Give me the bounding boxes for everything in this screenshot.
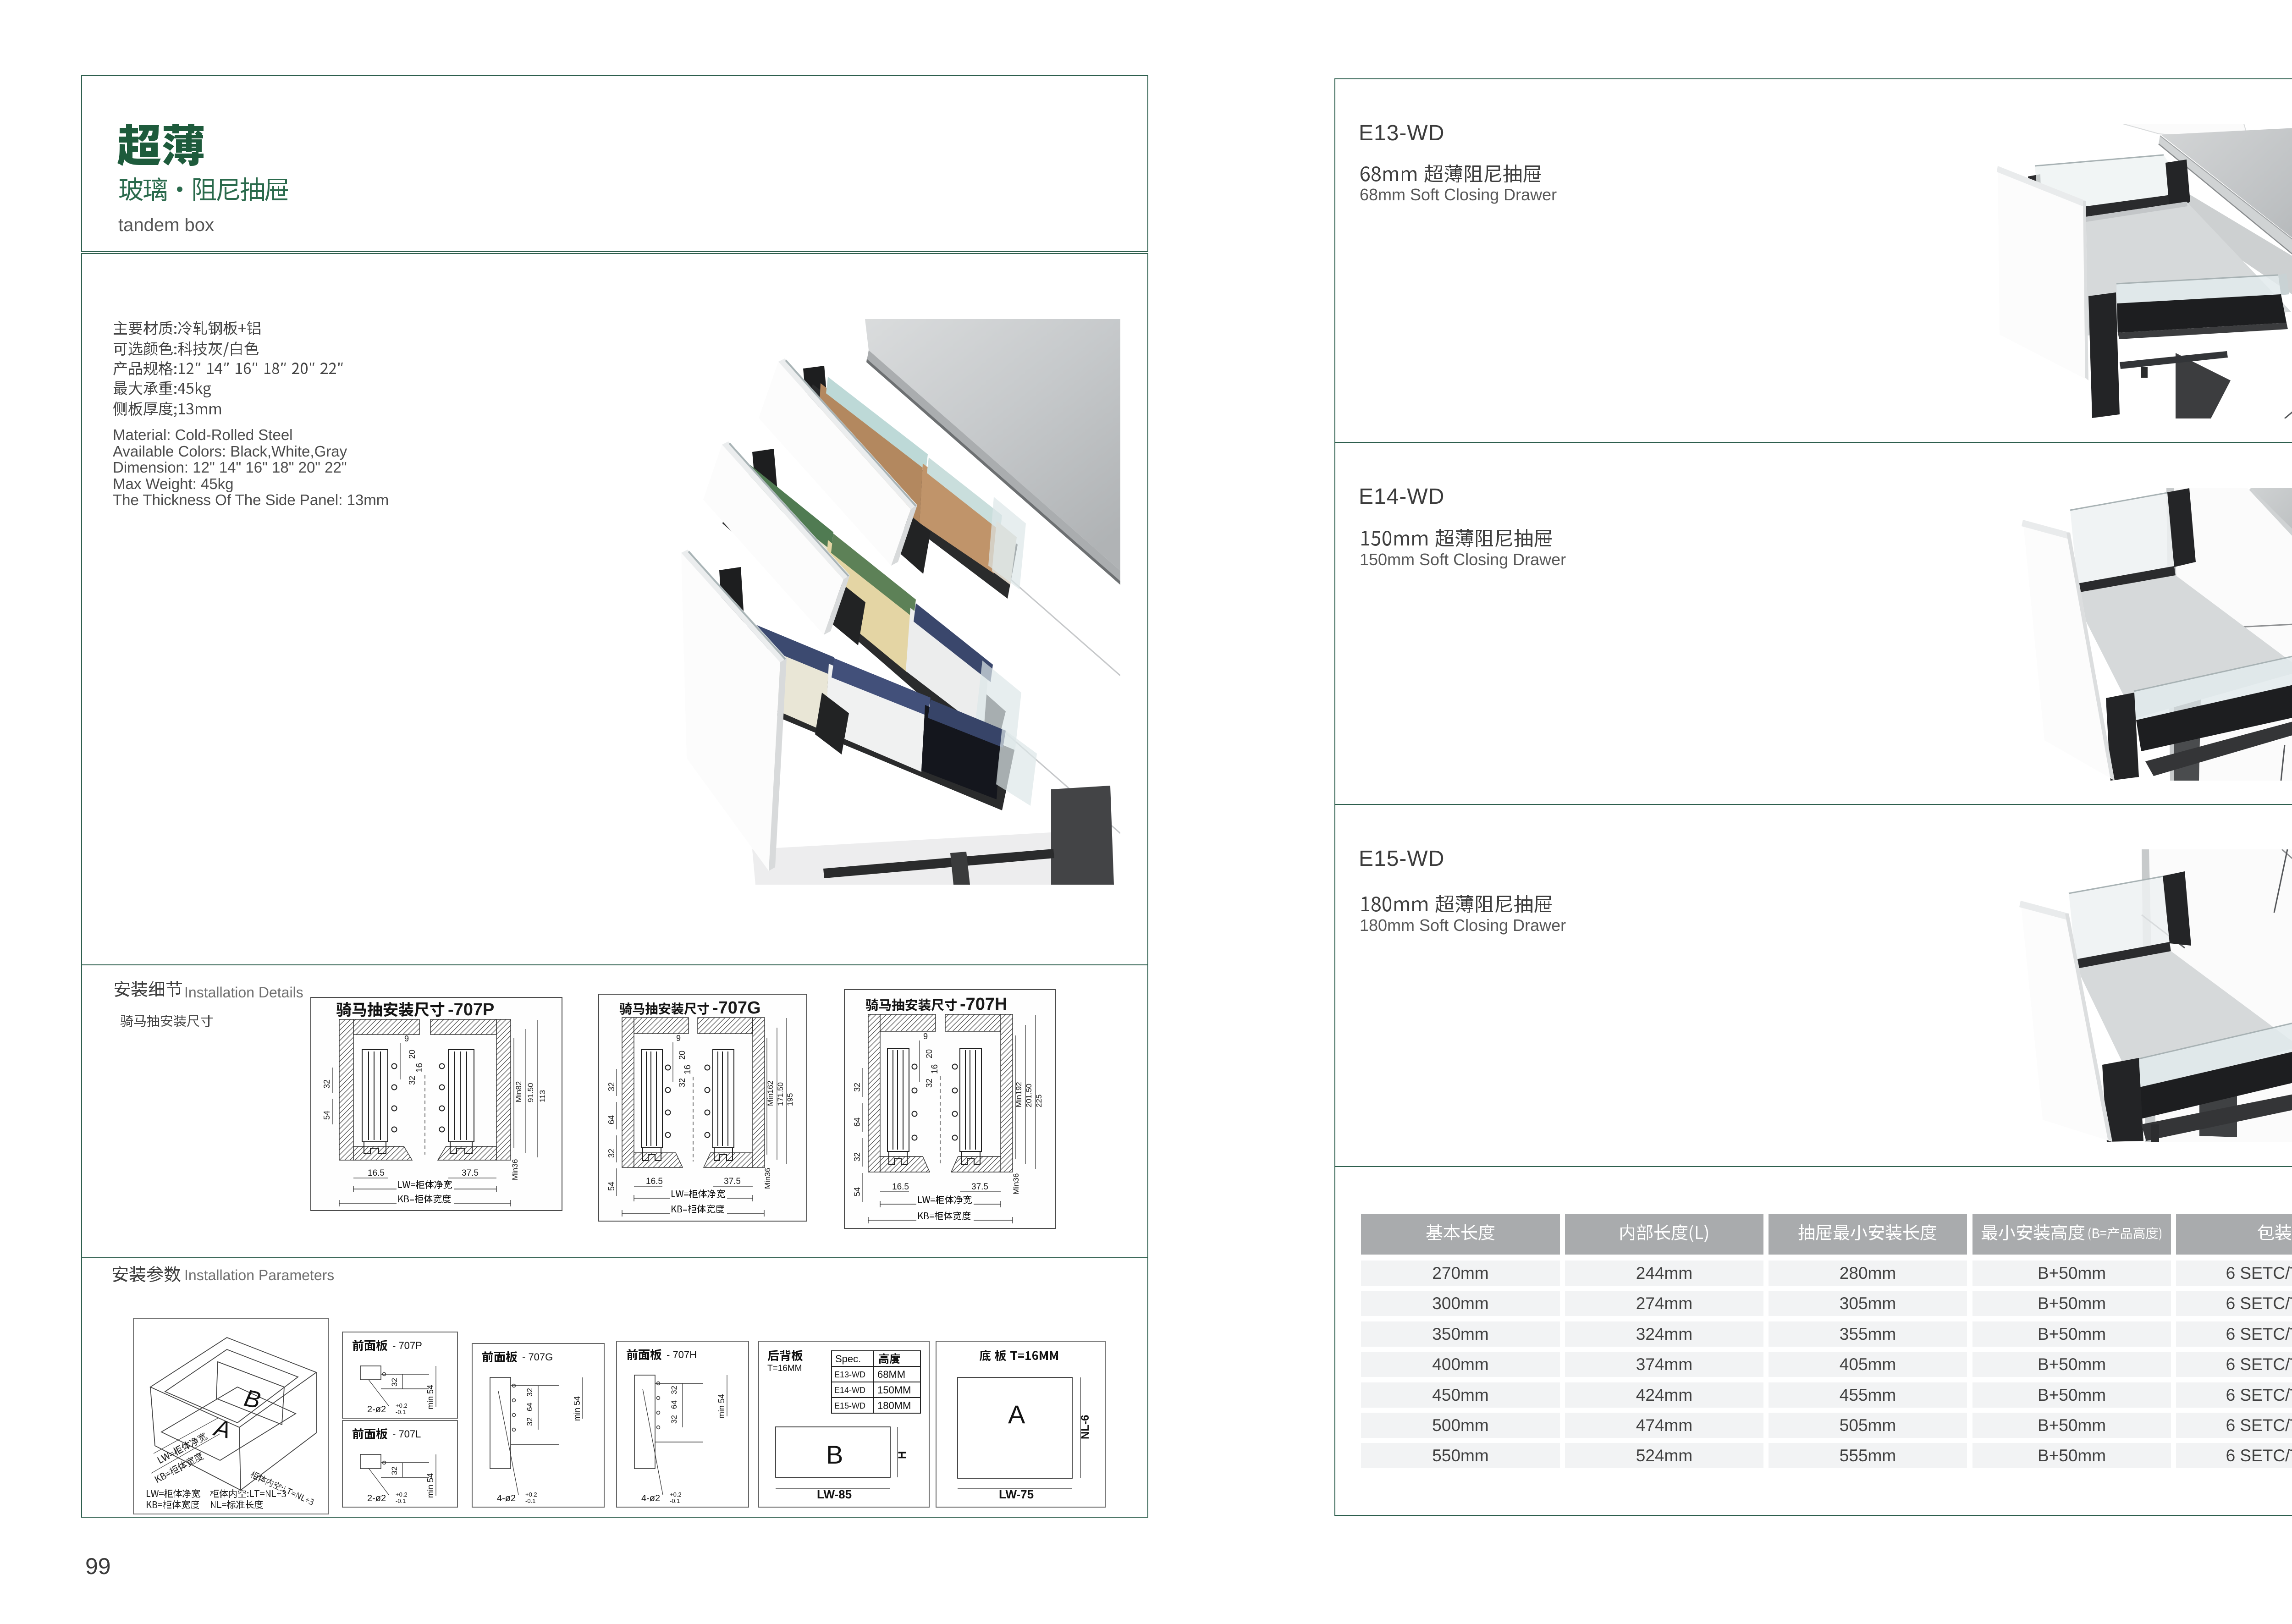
svg-text:37.5: 37.5 bbox=[462, 1168, 479, 1178]
svg-text:180MM: 180MM bbox=[877, 1400, 911, 1411]
svg-text:16.5: 16.5 bbox=[892, 1182, 909, 1192]
svg-text:A: A bbox=[1008, 1400, 1025, 1429]
svg-text:E15-WD: E15-WD bbox=[834, 1401, 865, 1410]
svg-text:2-ø2: 2-ø2 bbox=[367, 1404, 386, 1415]
svg-text:171.50: 171.50 bbox=[776, 1082, 785, 1106]
svg-text:Min36: Min36 bbox=[511, 1159, 519, 1180]
svg-text:Min82: Min82 bbox=[514, 1081, 523, 1102]
svg-text:B: B bbox=[826, 1440, 843, 1469]
svg-text:113: 113 bbox=[538, 1090, 547, 1102]
svg-text:37.5: 37.5 bbox=[724, 1177, 741, 1186]
svg-text:32: 32 bbox=[670, 1386, 678, 1394]
svg-text:min 54: min 54 bbox=[426, 1473, 435, 1498]
svg-text:32: 32 bbox=[925, 1079, 934, 1088]
svg-text:32: 32 bbox=[322, 1079, 331, 1089]
svg-text:+0.2: +0.2 bbox=[396, 1491, 408, 1498]
svg-text:32: 32 bbox=[678, 1078, 687, 1087]
svg-text:-0.1: -0.1 bbox=[670, 1497, 680, 1504]
svg-text:32: 32 bbox=[853, 1152, 862, 1162]
svg-text:Min36: Min36 bbox=[1012, 1173, 1020, 1195]
svg-text:32: 32 bbox=[670, 1415, 678, 1424]
svg-text:min 54: min 54 bbox=[717, 1394, 726, 1419]
svg-text:32: 32 bbox=[390, 1466, 399, 1475]
svg-text:32: 32 bbox=[525, 1417, 534, 1426]
svg-text:16.5: 16.5 bbox=[646, 1177, 663, 1186]
svg-text:64: 64 bbox=[607, 1115, 616, 1124]
svg-text:16: 16 bbox=[415, 1063, 424, 1073]
svg-text:-707G: -707G bbox=[712, 998, 761, 1018]
svg-text:-707H: -707H bbox=[960, 995, 1008, 1014]
svg-text:- 707P: - 707P bbox=[392, 1340, 422, 1351]
svg-text:64: 64 bbox=[525, 1403, 534, 1411]
svg-text:54: 54 bbox=[853, 1187, 862, 1196]
svg-text:NL-6: NL-6 bbox=[1079, 1415, 1091, 1439]
svg-text:64: 64 bbox=[853, 1118, 862, 1127]
svg-text:Min36: Min36 bbox=[763, 1168, 772, 1189]
svg-text:54: 54 bbox=[322, 1111, 331, 1120]
svg-text:2-ø2: 2-ø2 bbox=[367, 1493, 386, 1503]
svg-text:20: 20 bbox=[408, 1050, 417, 1059]
svg-text:20: 20 bbox=[925, 1049, 934, 1058]
svg-text:LW-75: LW-75 bbox=[999, 1487, 1034, 1501]
svg-text:- 707H: - 707H bbox=[667, 1349, 697, 1360]
svg-text:16: 16 bbox=[683, 1065, 693, 1074]
svg-text:9: 9 bbox=[923, 1032, 928, 1041]
svg-text:32: 32 bbox=[607, 1149, 616, 1158]
svg-text:20: 20 bbox=[678, 1051, 687, 1060]
svg-text:16: 16 bbox=[930, 1064, 940, 1074]
svg-text:37.5: 37.5 bbox=[971, 1182, 988, 1192]
svg-text:32: 32 bbox=[525, 1388, 534, 1397]
svg-text:32: 32 bbox=[607, 1082, 616, 1091]
svg-text:64: 64 bbox=[670, 1400, 678, 1409]
svg-text:LW-85: LW-85 bbox=[817, 1487, 852, 1501]
svg-text:195: 195 bbox=[786, 1093, 794, 1106]
svg-text:9: 9 bbox=[676, 1034, 681, 1043]
svg-text:32: 32 bbox=[853, 1083, 862, 1092]
svg-text:4-ø2: 4-ø2 bbox=[497, 1493, 516, 1503]
svg-text:E13-WD: E13-WD bbox=[834, 1370, 865, 1379]
svg-text:91.50: 91.50 bbox=[526, 1083, 535, 1102]
svg-text:201.50: 201.50 bbox=[1025, 1084, 1033, 1107]
svg-text:min 54: min 54 bbox=[426, 1385, 435, 1409]
svg-text:+0.2: +0.2 bbox=[396, 1402, 408, 1409]
svg-text:min 54: min 54 bbox=[573, 1396, 582, 1421]
svg-text:+0.2: +0.2 bbox=[670, 1491, 682, 1498]
svg-text:150MM: 150MM bbox=[877, 1384, 911, 1396]
svg-text:H: H bbox=[896, 1451, 909, 1459]
svg-text:Min192: Min192 bbox=[1014, 1082, 1023, 1107]
svg-text:9: 9 bbox=[404, 1034, 409, 1043]
svg-text:-707P: -707P bbox=[448, 1000, 494, 1019]
svg-text:- 707G: - 707G bbox=[522, 1351, 553, 1363]
svg-text:4-ø2: 4-ø2 bbox=[641, 1493, 660, 1503]
svg-text:+0.2: +0.2 bbox=[525, 1491, 537, 1498]
svg-text:16.5: 16.5 bbox=[368, 1168, 385, 1178]
svg-text:E14-WD: E14-WD bbox=[834, 1386, 865, 1395]
svg-text:- 707L: - 707L bbox=[392, 1428, 421, 1440]
svg-text:54: 54 bbox=[607, 1182, 616, 1191]
svg-text:32: 32 bbox=[408, 1076, 417, 1085]
svg-text:T=16MM: T=16MM bbox=[767, 1364, 802, 1373]
svg-text:Min162: Min162 bbox=[766, 1080, 775, 1106]
svg-text:-0.1: -0.1 bbox=[396, 1497, 406, 1504]
svg-text:225: 225 bbox=[1035, 1095, 1043, 1107]
svg-text:Spec.: Spec. bbox=[835, 1353, 861, 1365]
svg-text:32: 32 bbox=[390, 1378, 399, 1387]
svg-text:68MM: 68MM bbox=[877, 1369, 905, 1380]
svg-text:-0.1: -0.1 bbox=[525, 1497, 535, 1504]
svg-text:-0.1: -0.1 bbox=[396, 1409, 406, 1415]
